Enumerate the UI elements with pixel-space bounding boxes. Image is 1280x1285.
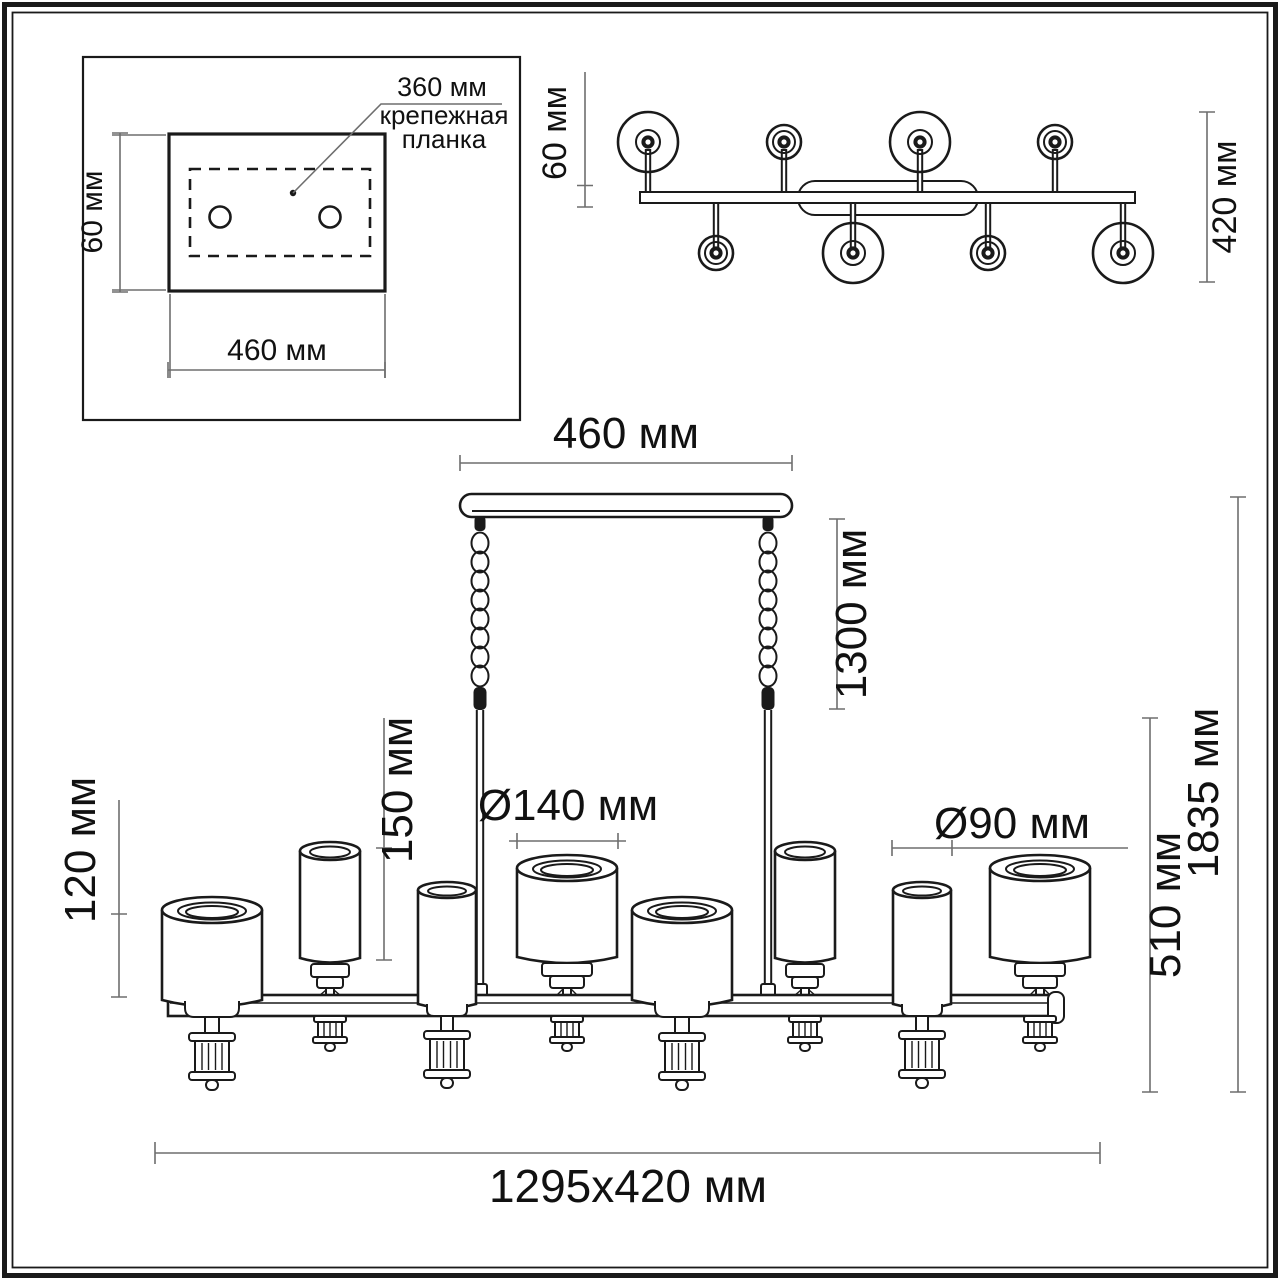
large-shade-height-label: 120 мм [56,777,105,923]
shade-small-back [775,842,835,996]
shade-large-back [517,855,617,996]
mounting-hole-left [210,207,231,228]
plan-bar [640,192,1135,203]
mounting-plate-inset: 360 мм крепежная планка 60 мм 460 мм [76,57,520,420]
large-shade-diameter-label: Ø140 мм [478,781,658,830]
finial-small [550,1016,584,1051]
plan-lamp-small [971,236,1005,270]
inset-width-label: 460 мм [227,334,327,367]
large-shade-height-dimension [111,800,127,997]
small-shade-diameter-label: Ø90 мм [934,799,1090,848]
finial-small [1023,1016,1057,1051]
plan-depth-label: 420 мм [1206,141,1244,254]
plan-lamp-small [767,125,801,159]
plan-arm-offset-dimension [577,72,593,207]
side-view: 460 мм 1300 мм 150 мм 120 мм Ø140 мм Ø90… [56,409,1246,1212]
top-view: 60 мм 420 мм [536,72,1244,283]
overall-size-label: 1295x420 мм [489,1160,767,1212]
chain-length-label: 1300 мм [827,529,876,700]
shade-large-front [162,897,262,1090]
plan-lamp-small [699,236,733,270]
shade-small-front [418,882,476,1088]
canopy-width-label: 460 мм [553,409,699,458]
drawing-page: 360 мм крепежная планка 60 мм 460 мм [0,0,1280,1280]
plan-lamp-small [1038,125,1072,159]
bracket-width-label: 360 мм [397,72,487,102]
plan-arm-offset-label: 60 мм [536,86,574,180]
mounting-bracket-dashed-outline [190,169,370,256]
mounting-hole-right [320,207,341,228]
shade-small-front [893,882,951,1088]
canopy [460,494,792,517]
finial-small [313,1016,347,1051]
shade-large-front [632,897,732,1090]
shade-small-back [300,842,360,996]
shade-large-back [990,855,1090,996]
total-height-label: 1835 мм [1179,708,1228,879]
inset-height-label: 60 мм [76,171,109,254]
large-shade-diameter-dimension [509,833,626,849]
small-shade-height-label: 150 мм [373,717,422,863]
finial-small [788,1016,822,1051]
total-height-dimension [1230,497,1246,1092]
bracket-name-line2: планка [402,124,487,154]
inset-height-dimension [112,133,166,292]
chandelier-dimension-drawing: 360 мм крепежная планка 60 мм 460 мм [0,0,1280,1280]
ceiling-plate-outline [169,134,385,291]
